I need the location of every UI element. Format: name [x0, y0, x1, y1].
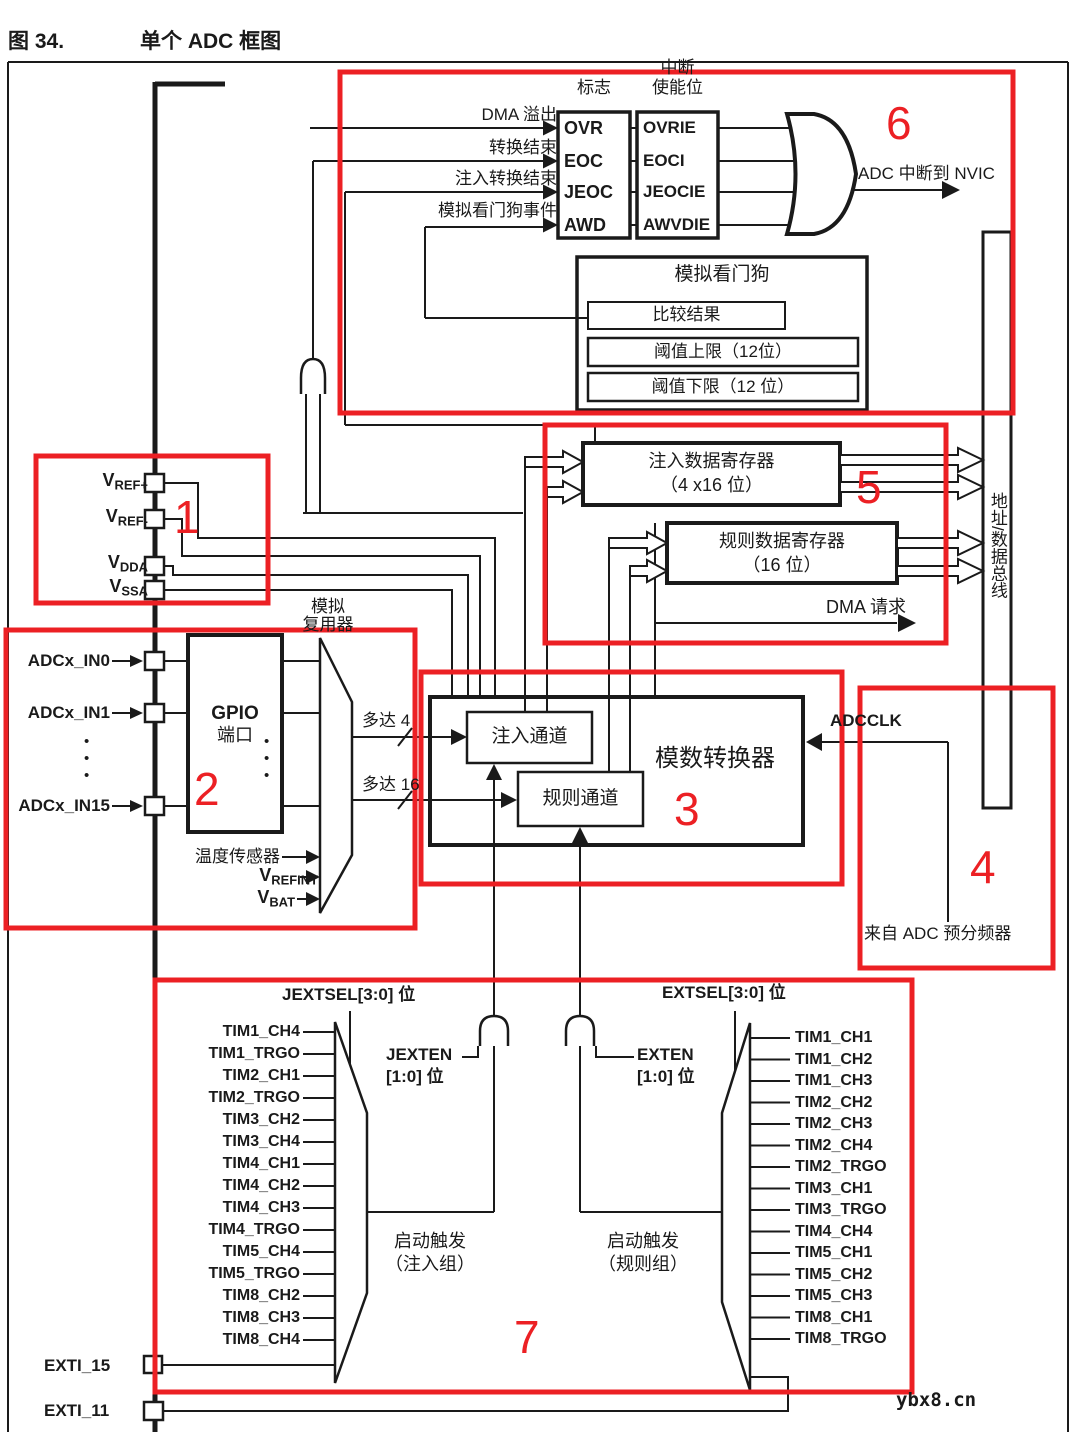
list-item: TIM4_TRGO: [208, 1222, 300, 1239]
jexten-gate: [480, 1016, 508, 1046]
list-item: TIM1_TRGO: [208, 1046, 300, 1063]
regular-trigger-input-lines: [750, 1038, 790, 1339]
flag-ovr: OVR: [564, 119, 603, 138]
annotation-number-4: 4: [970, 844, 996, 890]
list-item: TIM1_CH4: [223, 1024, 300, 1041]
list-item: TIM5_CH3: [795, 1288, 872, 1305]
event-end-of-injected-conversion: 注入转换结束: [455, 170, 557, 188]
flag-jeoc: JEOC: [564, 183, 613, 202]
flag-eoc: EOC: [564, 152, 603, 171]
vssa-label: VSSA: [109, 577, 148, 598]
adc-converter-title: 模数转换器: [655, 746, 775, 771]
list-item: TIM4_CH4: [795, 1224, 872, 1241]
regular-trigger-label-line2: （规则组）: [588, 1255, 698, 1274]
enable-header-line1: 中断: [637, 59, 718, 77]
list-item: TIM8_CH2: [223, 1288, 300, 1305]
list-item: TIM2_CH2: [795, 1095, 872, 1112]
enable-ovrie: OVRIE: [643, 119, 696, 137]
list-item: TIM3_CH4: [223, 1134, 300, 1151]
vref-plus-label: VREF+: [103, 471, 149, 492]
nvic-output-label: ADC 中断到 NVIC: [858, 165, 995, 183]
flags-header: 标志: [558, 79, 630, 97]
adc-block-diagram: 图 34. 单个 ADC 框图 标志 中断 使能位 DMA 溢出 转换结束 注入…: [0, 0, 1080, 1432]
injected-register-line2: （4 x16 位）: [583, 476, 840, 495]
vdda-label: VDDA: [108, 553, 148, 574]
list-item: TIM1_CH2: [795, 1052, 872, 1069]
injected-channels-label: 注入通道: [467, 727, 592, 747]
list-item: TIM2_CH1: [223, 1068, 300, 1085]
injected-trigger-mux-shape: [335, 1022, 367, 1383]
exten-gate: [566, 1016, 594, 1046]
gpio-label-line1: GPIO: [188, 704, 282, 724]
watchdog-title: 模拟看门狗: [597, 265, 847, 285]
annotation-number-6: 6: [886, 100, 912, 146]
injected-trigger-label-line2: （注入组）: [375, 1255, 485, 1274]
list-item: TIM5_TRGO: [208, 1266, 300, 1283]
exten-label-line2: [1:0] 位: [637, 1068, 695, 1086]
exti11-pin: [144, 1402, 163, 1420]
analog-mux-label-line1: 模拟: [296, 598, 360, 616]
figure-label: 图 34.: [8, 31, 64, 53]
compare-result-label: 比较结果: [588, 306, 785, 324]
watermark: ybx8.cn: [896, 1391, 976, 1411]
regular-trigger-mux-shape: [722, 1023, 750, 1390]
figure-title: 单个 ADC 框图: [140, 31, 281, 53]
event-dma-overrun: DMA 溢出: [481, 106, 557, 124]
list-item: TIM8_TRGO: [795, 1331, 887, 1348]
list-item: TIM2_TRGO: [795, 1159, 887, 1176]
enable-awvdie: AWVDIE: [643, 216, 710, 234]
jextsel-label: JEXTSEL[3:0] 位: [282, 986, 415, 1004]
adcx-in0-label: ADCx_IN0: [28, 652, 110, 670]
list-item: TIM2_CH4: [795, 1138, 872, 1155]
adcx-in1-label: ADCx_IN1: [28, 704, 110, 722]
list-item: TIM5_CH2: [795, 1267, 872, 1284]
extsel-label: EXTSEL[3:0] 位: [662, 984, 786, 1002]
enable-header-line2: 使能位: [637, 79, 718, 97]
temp-sensor-label: 温度传感器: [195, 848, 280, 866]
analog-mux-shape: [320, 638, 352, 913]
regular-channels-label: 规则通道: [518, 789, 643, 809]
annotation-number-7: 7: [514, 1314, 540, 1360]
list-item: TIM1_CH3: [795, 1073, 872, 1090]
vrefint-label: VREFINT: [259, 866, 318, 887]
ellipsis-dots-left: •••: [84, 733, 89, 784]
adcx-in1-pin: [145, 704, 164, 722]
adcx-in15-pin: [145, 797, 164, 815]
regular-trigger-label-line1: 启动触发: [588, 1232, 698, 1251]
regular-register-line2: （16 位）: [667, 556, 897, 575]
list-item: TIM4_CH3: [223, 1200, 300, 1217]
lower-threshold-label: 阈值下限（12 位）: [588, 378, 858, 396]
enable-eoci: EOCI: [643, 152, 685, 170]
jexten-label-line2: [1:0] 位: [386, 1068, 444, 1086]
list-item: TIM5_CH4: [223, 1244, 300, 1261]
injected-trigger-label-line1: 启动触发: [375, 1232, 485, 1251]
list-item: TIM3_TRGO: [795, 1202, 887, 1219]
exti11-label: EXTI_11: [44, 1402, 109, 1420]
flag-awd: AWD: [564, 216, 606, 235]
exti15-label: EXTI_15: [44, 1357, 110, 1375]
dma-request-label: DMA 请求: [826, 598, 906, 617]
list-item: TIM8_CH4: [223, 1332, 300, 1349]
injected-trigger-input-lines: [303, 1032, 335, 1340]
annotation-number-2: 2: [194, 766, 220, 812]
up-to-4-label: 多达 4: [362, 712, 410, 730]
list-item: TIM8_CH3: [223, 1310, 300, 1327]
interrupt-or-gate: [787, 114, 856, 234]
list-item: TIM3_CH1: [795, 1181, 872, 1198]
exten-label-line1: EXTEN: [637, 1046, 694, 1064]
up-to-16-label: 多达 16: [362, 776, 420, 794]
adc-prescaler-label: 来自 ADC 预分频器: [864, 925, 1011, 943]
regular-register-line1: 规则数据寄存器: [667, 532, 897, 551]
list-item: TIM5_CH1: [795, 1245, 872, 1262]
annotation-number-3: 3: [674, 786, 700, 832]
list-item: TIM3_CH2: [223, 1112, 300, 1129]
address-data-bus-label: 地址/数据总线: [983, 420, 1011, 670]
enable-jeocie: JEOCIE: [643, 183, 705, 201]
adcclk-label: ADCCLK: [830, 712, 902, 730]
list-item: TIM2_TRGO: [208, 1090, 300, 1107]
jexten-label-line1: JEXTEN: [386, 1046, 452, 1064]
list-item: TIM1_CH1: [795, 1030, 872, 1047]
gpio-label-line2: 端口: [188, 726, 282, 745]
vbat-label: VBAT: [257, 888, 295, 909]
event-analog-watchdog: 模拟看门狗事件: [438, 202, 557, 220]
adcx-in15-label: ADCx_IN15: [18, 797, 110, 815]
list-item: TIM4_CH1: [223, 1156, 300, 1173]
annotation-number-1: 1: [174, 494, 200, 540]
list-item: TIM2_CH3: [795, 1116, 872, 1133]
upper-threshold-label: 阈值上限（12位）: [588, 343, 858, 361]
event-end-of-conversion: 转换结束: [489, 139, 557, 157]
eoc-or-gate: [301, 359, 325, 394]
injected-register-line1: 注入数据寄存器: [583, 452, 840, 471]
list-item: TIM4_CH2: [223, 1178, 300, 1195]
vref-minus-label: VREF-: [106, 507, 148, 528]
adcx-in0-pin: [145, 652, 164, 670]
analog-mux-label-line2: 复用器: [288, 616, 368, 634]
annotation-number-5: 5: [856, 464, 882, 510]
list-item: TIM8_CH1: [795, 1310, 872, 1327]
